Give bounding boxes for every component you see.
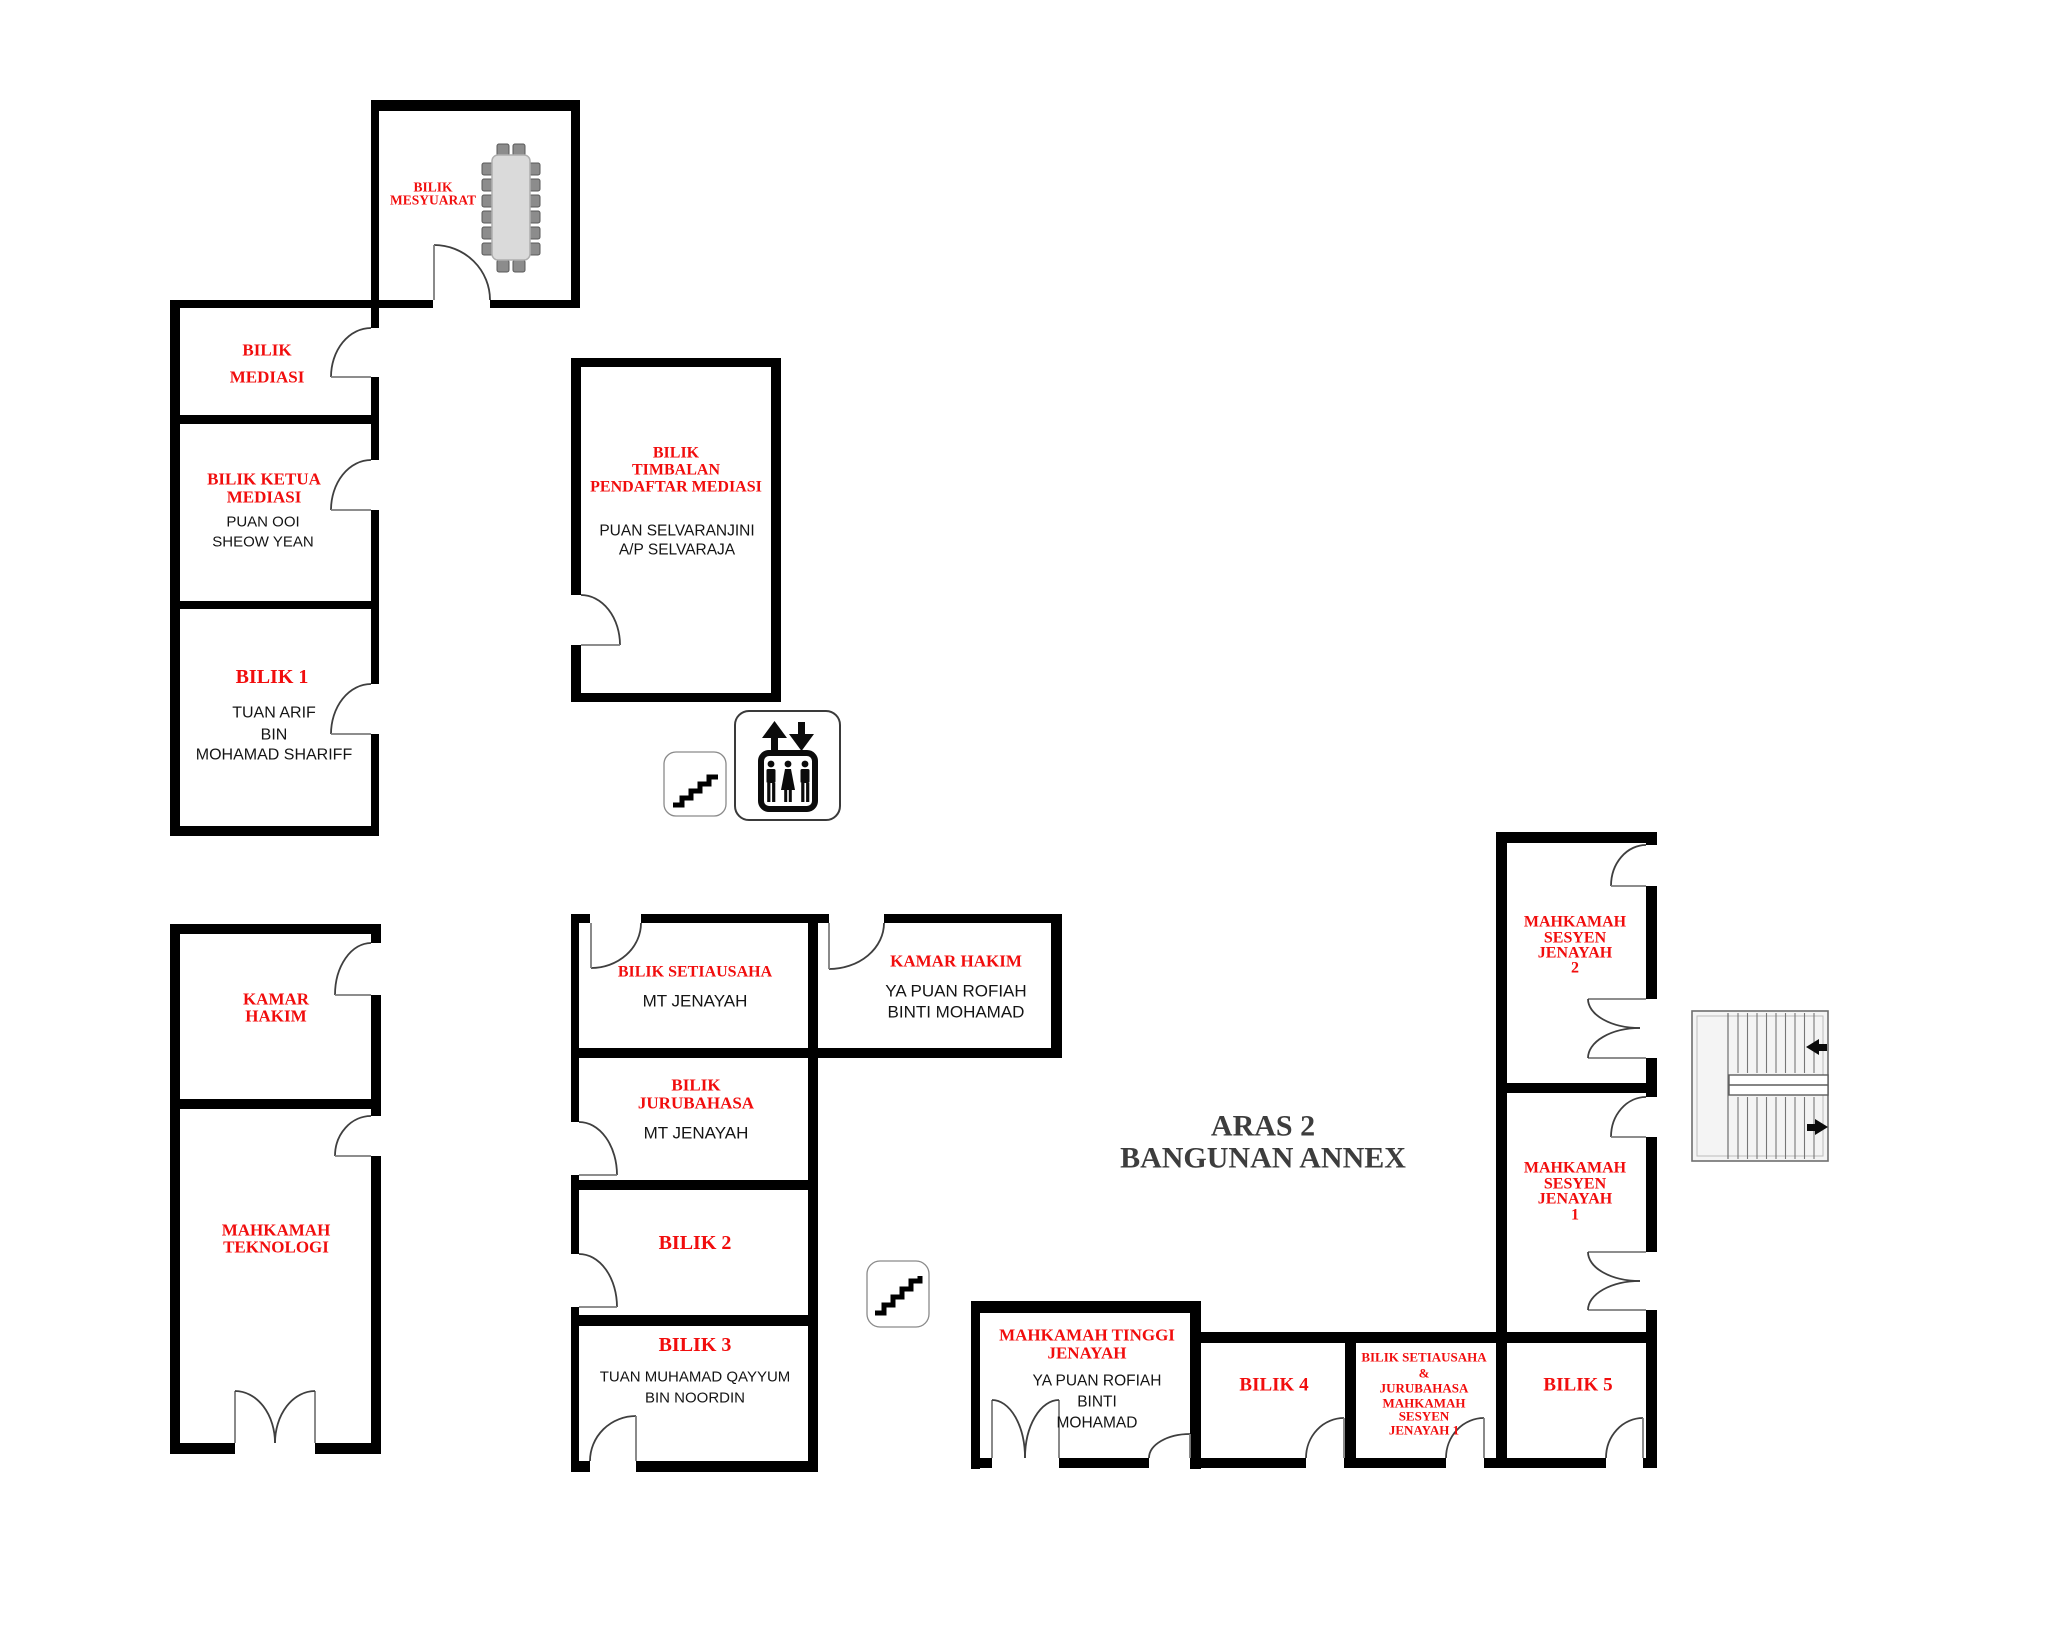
- svg-text:YA PUAN ROFIAH: YA PUAN ROFIAH: [885, 982, 1026, 1001]
- svg-text:JENAYAH: JENAYAH: [1047, 1344, 1126, 1363]
- svg-text:KAMAR HAKIM: KAMAR HAKIM: [890, 952, 1022, 971]
- svg-text:PUAN SELVARANJINI: PUAN SELVARANJINI: [599, 523, 754, 540]
- svg-text:YA PUAN ROFIAH: YA PUAN ROFIAH: [1033, 1373, 1162, 1390]
- svg-text:ARAS 2: ARAS 2: [1211, 1110, 1315, 1143]
- svg-text:MT JENAYAH: MT JENAYAH: [643, 992, 748, 1011]
- svg-text:BILIK SETIAUSAHA: BILIK SETIAUSAHA: [618, 964, 773, 981]
- svg-text:SHEOW YEAN: SHEOW YEAN: [212, 534, 313, 551]
- svg-text:MAHKAMAH: MAHKAMAH: [1524, 1160, 1627, 1177]
- svg-text:PENDAFTAR MEDIASI: PENDAFTAR MEDIASI: [590, 479, 762, 496]
- svg-text:1: 1: [1571, 1207, 1579, 1224]
- svg-text:2: 2: [1571, 960, 1579, 977]
- svg-text:JURUBAHASA: JURUBAHASA: [638, 1094, 755, 1113]
- svg-text:JURUBAHASA: JURUBAHASA: [1380, 1381, 1469, 1396]
- svg-text:MT JENAYAH: MT JENAYAH: [644, 1124, 749, 1143]
- svg-text:A/P SELVARAJA: A/P SELVARAJA: [619, 542, 736, 559]
- svg-text:TUAN ARIF: TUAN ARIF: [232, 705, 316, 722]
- svg-text:JENAYAH 1: JENAYAH 1: [1389, 1423, 1459, 1438]
- svg-text:BILIK KETUA: BILIK KETUA: [207, 470, 322, 489]
- svg-text:BILIK 2: BILIK 2: [659, 1232, 732, 1254]
- svg-text:BILIK 4: BILIK 4: [1239, 1375, 1309, 1396]
- svg-text:JENAYAH: JENAYAH: [1538, 1191, 1613, 1208]
- svg-text:MOHAMAD SHARIFF: MOHAMAD SHARIFF: [196, 747, 353, 764]
- svg-text:MAHKAMAH TINGGI: MAHKAMAH TINGGI: [999, 1326, 1175, 1345]
- svg-text:MAHKAMAH: MAHKAMAH: [1524, 914, 1627, 931]
- svg-text:BILIK: BILIK: [653, 445, 700, 462]
- svg-text:BILIK SETIAUSAHA: BILIK SETIAUSAHA: [1361, 1350, 1487, 1365]
- svg-text:BILIK: BILIK: [242, 341, 292, 360]
- svg-text:&: &: [1419, 1366, 1430, 1381]
- svg-text:BIN NOORDIN: BIN NOORDIN: [645, 1390, 745, 1407]
- svg-text:BIN: BIN: [261, 727, 288, 744]
- svg-text:SESYEN: SESYEN: [1399, 1409, 1450, 1424]
- svg-text:BILIK 1: BILIK 1: [236, 666, 309, 688]
- svg-text:BILIK: BILIK: [671, 1076, 721, 1095]
- svg-text:MESYUARAT: MESYUARAT: [390, 193, 476, 208]
- svg-text:TUAN MUHAMAD QAYYUM: TUAN MUHAMAD QAYYUM: [600, 1369, 791, 1386]
- svg-text:HAKIM: HAKIM: [245, 1007, 306, 1026]
- svg-text:BINTI MOHAMAD: BINTI MOHAMAD: [888, 1003, 1025, 1022]
- svg-text:MEDIASI: MEDIASI: [230, 368, 305, 387]
- svg-text:MEDIASI: MEDIASI: [227, 488, 302, 507]
- svg-text:TIMBALAN: TIMBALAN: [632, 462, 720, 479]
- svg-text:BINTI: BINTI: [1077, 1394, 1117, 1411]
- svg-text:MOHAMAD: MOHAMAD: [1057, 1415, 1138, 1432]
- svg-text:PUAN OOI: PUAN OOI: [226, 514, 299, 531]
- svg-text:BANGUNAN ANNEX: BANGUNAN ANNEX: [1120, 1142, 1406, 1175]
- svg-text:BILIK 3: BILIK 3: [659, 1334, 732, 1356]
- svg-text:TEKNOLOGI: TEKNOLOGI: [223, 1238, 329, 1257]
- svg-text:BILIK 5: BILIK 5: [1543, 1375, 1612, 1396]
